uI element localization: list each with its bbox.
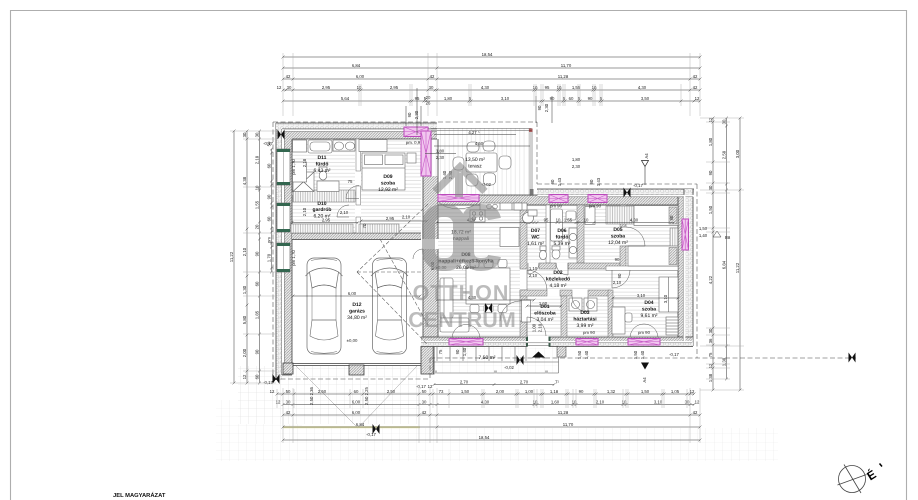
svg-text:D11: D11 <box>318 155 327 161</box>
svg-text:-0,17: -0,17 <box>633 183 643 188</box>
svg-text:11,22: 11,22 <box>229 251 234 262</box>
svg-text:75: 75 <box>438 349 443 354</box>
svg-text:2,00: 2,00 <box>496 389 505 394</box>
svg-text:D03: D03 <box>580 310 589 316</box>
svg-text:pm 1,70: pm 1,70 <box>291 250 296 266</box>
svg-text:1,00: 1,00 <box>532 323 537 332</box>
svg-text:1,70: 1,70 <box>266 253 271 262</box>
svg-text:1,18: 1,18 <box>550 389 559 394</box>
svg-text:60: 60 <box>266 216 271 221</box>
svg-text:1,50: 1,50 <box>699 226 708 231</box>
svg-text:90: 90 <box>669 215 674 220</box>
svg-text:2,10: 2,10 <box>529 273 538 278</box>
svg-text:1,40: 1,40 <box>584 350 589 359</box>
svg-text:5,80: 5,80 <box>242 315 247 324</box>
svg-text:2,95: 2,95 <box>322 217 331 222</box>
svg-text:11,28: 11,28 <box>558 410 569 415</box>
svg-text:szoba: szoba <box>642 307 656 313</box>
svg-text:1,05: 1,05 <box>671 389 680 394</box>
svg-text:2,10: 2,10 <box>242 247 247 256</box>
svg-text:D02: D02 <box>553 270 562 276</box>
svg-text:20: 20 <box>426 95 431 100</box>
svg-text:12: 12 <box>695 96 700 101</box>
svg-text:OTTHON: OTTHON <box>413 281 510 305</box>
svg-text:95: 95 <box>545 85 550 90</box>
svg-text:90: 90 <box>708 170 713 175</box>
svg-text:1,85: 1,85 <box>254 310 259 319</box>
svg-text:30: 30 <box>685 399 690 404</box>
svg-text:90: 90 <box>407 112 412 117</box>
svg-text:2,10: 2,10 <box>340 210 349 215</box>
svg-text:18,54: 18,54 <box>479 435 490 440</box>
svg-text:pm 90: pm 90 <box>589 204 602 209</box>
svg-text:D10: D10 <box>317 201 326 207</box>
svg-text:6,00: 6,00 <box>352 410 361 415</box>
svg-text:3,10: 3,10 <box>637 293 646 298</box>
svg-text:95: 95 <box>544 217 549 222</box>
svg-text:2,30: 2,30 <box>414 110 419 119</box>
svg-text:90: 90 <box>588 96 593 101</box>
svg-text:90: 90 <box>537 105 542 110</box>
svg-text:pm 90: pm 90 <box>638 330 651 335</box>
svg-text:4,30: 4,30 <box>638 85 647 90</box>
svg-text:42: 42 <box>286 74 291 79</box>
svg-text:4,30: 4,30 <box>481 85 490 90</box>
svg-text:50: 50 <box>422 389 427 394</box>
svg-text:3,99 m²: 3,99 m² <box>577 323 594 329</box>
svg-text:D07: D07 <box>531 228 540 234</box>
svg-text:1,80: 1,80 <box>444 96 453 101</box>
svg-text:2,70: 2,70 <box>520 379 529 384</box>
svg-text:1,55: 1,55 <box>572 85 581 90</box>
svg-text:D09: D09 <box>383 174 392 180</box>
svg-text:30: 30 <box>254 132 259 137</box>
svg-text:6,84: 6,84 <box>356 422 365 427</box>
svg-text:2,95: 2,95 <box>322 85 331 90</box>
svg-text:60: 60 <box>266 163 271 168</box>
svg-text:1,50: 1,50 <box>577 350 582 359</box>
svg-text:1,80: 1,80 <box>572 157 581 162</box>
svg-text:90: 90 <box>266 194 271 199</box>
svg-text:4,22: 4,22 <box>708 275 713 284</box>
svg-text:30: 30 <box>708 185 713 190</box>
svg-text:2,30: 2,30 <box>572 164 581 169</box>
svg-text:1,50: 1,50 <box>641 389 650 394</box>
svg-text:1,32: 1,32 <box>607 389 616 394</box>
svg-text:42: 42 <box>286 410 291 415</box>
svg-text:2,10: 2,10 <box>302 207 307 216</box>
svg-text:7¹: 7¹ <box>555 379 559 384</box>
svg-text:gardrób: gardrób <box>313 207 332 213</box>
svg-text:50: 50 <box>286 389 291 394</box>
svg-text:3,00: 3,00 <box>735 149 740 158</box>
svg-text:90: 90 <box>455 349 460 354</box>
svg-text:1,55: 1,55 <box>254 200 259 209</box>
svg-text:4,50: 4,50 <box>475 141 484 146</box>
svg-text:D05: D05 <box>613 227 622 233</box>
svg-text:D04: D04 <box>644 300 653 306</box>
svg-text:11,70: 11,70 <box>561 63 572 68</box>
svg-text:12: 12 <box>270 389 275 394</box>
svg-text:2,95: 2,95 <box>390 85 399 90</box>
svg-text:9,61 m²: 9,61 m² <box>641 313 658 319</box>
svg-text:2,10: 2,10 <box>538 323 543 332</box>
svg-text:6,43 m²: 6,43 m² <box>314 168 331 174</box>
svg-text:10: 10 <box>557 85 562 90</box>
svg-text:5,39 m²: 5,39 m² <box>554 241 571 247</box>
svg-text:3,10: 3,10 <box>663 294 668 303</box>
svg-text:1,43: 1,43 <box>557 177 562 186</box>
svg-text:20: 20 <box>254 224 259 229</box>
svg-text:42: 42 <box>430 74 435 79</box>
svg-text:60: 60 <box>354 389 359 394</box>
svg-text:2,30: 2,30 <box>544 103 549 112</box>
svg-text:73: 73 <box>439 389 444 394</box>
svg-text:2,10: 2,10 <box>613 280 622 285</box>
svg-text:garázs: garázs <box>349 309 365 315</box>
svg-text:fürdő: fürdő <box>556 235 569 241</box>
svg-text:4,18 m²: 4,18 m² <box>550 283 567 289</box>
svg-text:2,18: 2,18 <box>254 155 259 164</box>
svg-text:12: 12 <box>242 374 247 379</box>
svg-text:1,60: 1,60 <box>539 301 548 306</box>
svg-text:2,50: 2,50 <box>318 389 327 394</box>
svg-text:12: 12 <box>428 384 433 389</box>
svg-text:2,10: 2,10 <box>402 215 411 220</box>
svg-text:fürdő: fürdő <box>316 162 329 168</box>
svg-text:3,04 m²: 3,04 m² <box>537 317 554 323</box>
svg-text:12,92 m²: 12,92 m² <box>378 187 398 193</box>
svg-text:90: 90 <box>617 273 622 278</box>
svg-text:50: 50 <box>266 141 271 146</box>
svg-text:1,43: 1,43 <box>596 177 601 186</box>
svg-text:90: 90 <box>254 349 259 354</box>
svg-text:2,50 2,25: 2,50 2,25 <box>364 386 369 405</box>
svg-text:-0,02: -0,02 <box>504 365 514 370</box>
svg-text:-0,17: -0,17 <box>669 352 679 357</box>
svg-text:30: 30 <box>287 85 292 90</box>
svg-text:5,64: 5,64 <box>341 96 350 101</box>
svg-text:90: 90 <box>550 179 555 184</box>
svg-text:1,38: 1,38 <box>721 357 726 366</box>
svg-text:előszoba: előszoba <box>534 311 556 317</box>
svg-text:70: 70 <box>362 223 367 228</box>
svg-text:11,22: 11,22 <box>735 262 740 273</box>
svg-text:6,00: 6,00 <box>348 291 357 296</box>
svg-text:A4: A4 <box>642 377 647 383</box>
svg-text:4,38: 4,38 <box>242 176 247 185</box>
svg-text:90: 90 <box>589 179 594 184</box>
svg-text:pm: pm <box>266 237 271 243</box>
svg-text:12,04 m²: 12,04 m² <box>608 240 628 246</box>
svg-text:12: 12 <box>276 399 281 404</box>
svg-text:36: 36 <box>708 338 713 343</box>
svg-text:±0,00: ±0,00 <box>347 338 358 343</box>
svg-text:2,95: 2,95 <box>386 216 395 221</box>
svg-text:2,18: 2,18 <box>302 158 307 167</box>
svg-text:12: 12 <box>277 85 282 90</box>
svg-text:12: 12 <box>695 399 700 404</box>
svg-text:10: 10 <box>584 217 589 222</box>
svg-text:18,54: 18,54 <box>482 52 493 57</box>
svg-text:B8: B8 <box>725 235 731 240</box>
svg-text:szoba: szoba <box>381 181 395 187</box>
svg-text:CENTRUM: CENTRUM <box>408 308 516 332</box>
svg-text:-0,17: -0,17 <box>366 432 376 437</box>
svg-text:6,84: 6,84 <box>352 63 361 68</box>
svg-text:1,00: 1,00 <box>525 389 534 394</box>
svg-text:11,28: 11,28 <box>558 74 569 79</box>
svg-text:pm 90: pm 90 <box>550 204 563 209</box>
svg-text:42: 42 <box>422 410 427 415</box>
svg-text:6,00: 6,00 <box>352 399 361 404</box>
svg-text:12: 12 <box>690 389 695 394</box>
svg-text:30: 30 <box>242 132 247 137</box>
svg-text:1,60: 1,60 <box>551 399 560 404</box>
svg-text:pm 90: pm 90 <box>583 330 596 335</box>
svg-text:2,10: 2,10 <box>596 399 605 404</box>
svg-text:60: 60 <box>254 281 259 286</box>
svg-text:pm 1,70: pm 1,70 <box>291 159 296 175</box>
svg-text:6,00: 6,00 <box>356 74 365 79</box>
svg-text:JEL MAGYARÁZAT: JEL MAGYARÁZAT <box>113 491 166 499</box>
svg-text:11,70: 11,70 <box>563 422 574 427</box>
svg-text:1,30: 1,30 <box>242 285 247 294</box>
svg-text:pm. 0,9: pm. 0,9 <box>406 140 421 145</box>
svg-text:75: 75 <box>708 352 713 357</box>
svg-text:95: 95 <box>415 96 420 101</box>
svg-text:4,30: 4,30 <box>630 217 639 222</box>
svg-text:3,10: 3,10 <box>654 399 663 404</box>
svg-text:60: 60 <box>569 96 574 101</box>
svg-text:10: 10 <box>592 85 597 90</box>
svg-text:1,40: 1,40 <box>462 347 467 356</box>
svg-text:2,70: 2,70 <box>460 379 469 384</box>
svg-text:26: 26 <box>426 101 431 106</box>
svg-text:1,50: 1,50 <box>633 350 638 359</box>
svg-text:D06: D06 <box>557 228 566 234</box>
svg-text:1,50: 1,50 <box>461 389 470 394</box>
svg-text:1,50: 1,50 <box>708 205 713 214</box>
svg-text:30: 30 <box>422 399 427 404</box>
svg-text:szoba: szoba <box>611 234 625 240</box>
svg-text:7,50 m²: 7,50 m² <box>479 355 496 361</box>
svg-text:1,40: 1,40 <box>640 350 645 359</box>
svg-text:90: 90 <box>615 257 620 262</box>
svg-text:90: 90 <box>579 389 584 394</box>
svg-text:3,10: 3,10 <box>501 96 510 101</box>
svg-text:10: 10 <box>254 185 259 190</box>
svg-text:háztartási: háztartási <box>573 317 597 323</box>
svg-text:42: 42 <box>693 74 698 79</box>
svg-text:75: 75 <box>348 179 353 184</box>
svg-text:30: 30 <box>708 328 713 333</box>
svg-text:1,80: 1,80 <box>436 149 445 154</box>
svg-text:42: 42 <box>693 85 698 90</box>
svg-text:90: 90 <box>550 96 555 101</box>
svg-text:6,84: 6,84 <box>721 260 726 269</box>
svg-text:1,40: 1,40 <box>699 233 708 238</box>
svg-text:90: 90 <box>254 251 259 256</box>
svg-text:13,50 m²: 13,50 m² <box>465 157 485 163</box>
svg-text:3,50: 3,50 <box>641 96 650 101</box>
svg-text:2,30: 2,30 <box>436 155 445 160</box>
svg-text:2,50: 2,50 <box>387 389 396 394</box>
svg-text:WC: WC <box>531 235 540 241</box>
svg-text:2,58: 2,58 <box>721 150 726 159</box>
svg-text:30: 30 <box>429 85 434 90</box>
svg-text:2,00: 2,00 <box>242 348 247 357</box>
svg-text:42: 42 <box>693 410 698 415</box>
svg-text:10: 10 <box>533 85 538 90</box>
svg-text:30: 30 <box>286 399 291 404</box>
svg-text:közlekedő: közlekedő <box>546 277 570 283</box>
svg-text:1,10: 1,10 <box>529 266 538 271</box>
svg-text:-0,17: -0,17 <box>263 380 273 385</box>
svg-text:1,55: 1,55 <box>564 217 573 222</box>
svg-text:30: 30 <box>721 119 726 124</box>
svg-text:D12: D12 <box>352 302 361 308</box>
svg-text:1,61 m²: 1,61 m² <box>527 241 544 247</box>
svg-text:A4: A4 <box>644 153 649 159</box>
svg-text:60: 60 <box>254 374 259 379</box>
svg-text:2,50 2,36: 2,50 2,36 <box>309 386 314 405</box>
svg-text:34,80 m²: 34,80 m² <box>347 315 367 321</box>
svg-text:terasz: terasz <box>468 164 482 170</box>
svg-text:1,38: 1,38 <box>708 373 713 382</box>
svg-text:10: 10 <box>556 217 561 222</box>
svg-text:1,80: 1,80 <box>708 137 713 146</box>
